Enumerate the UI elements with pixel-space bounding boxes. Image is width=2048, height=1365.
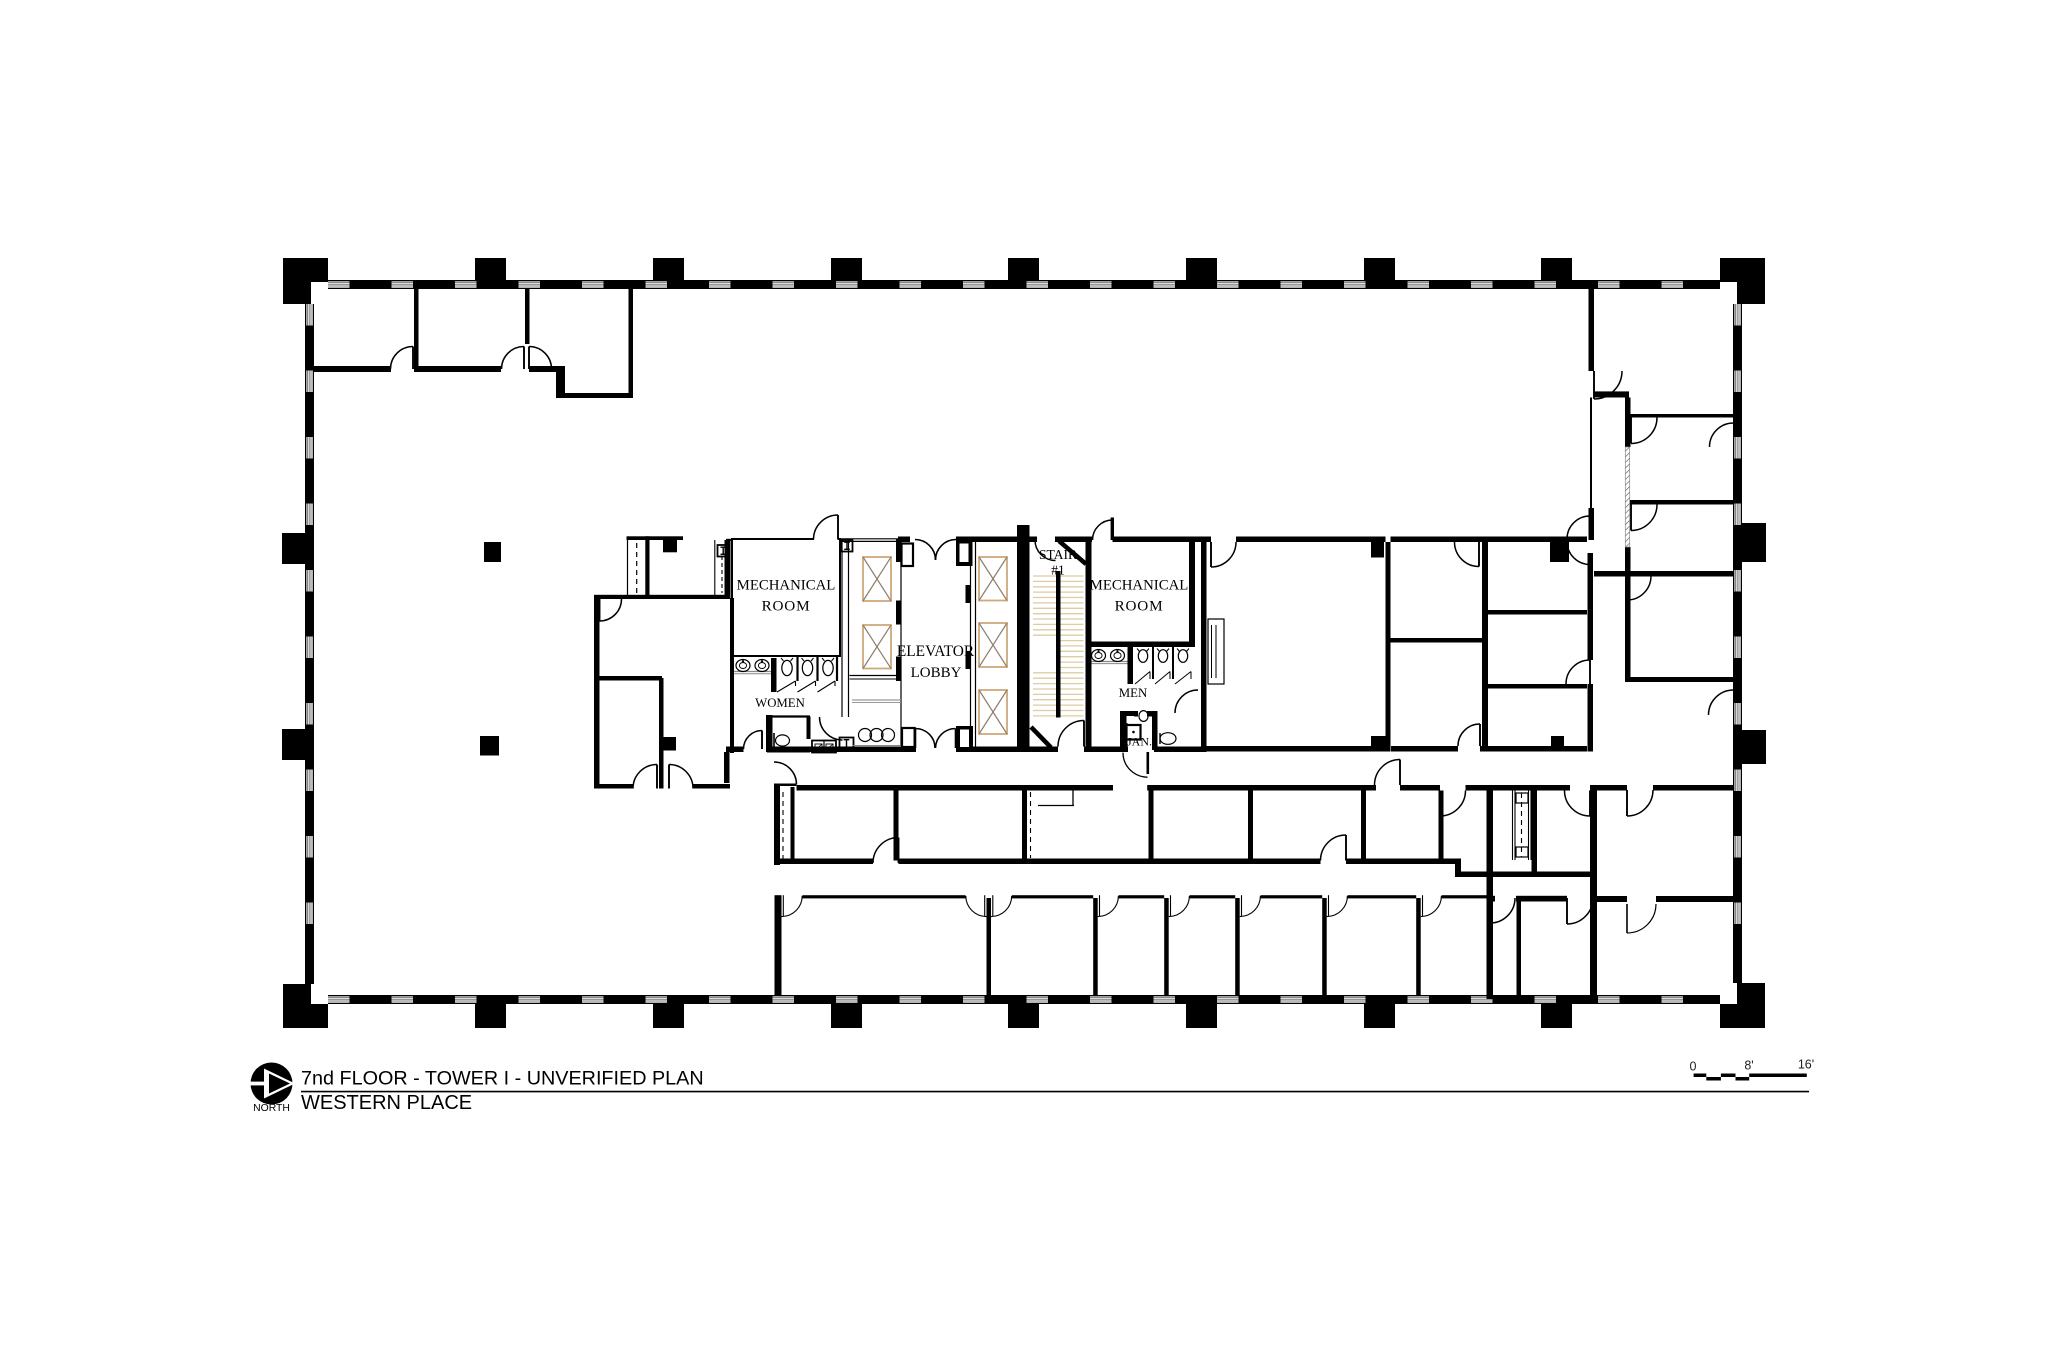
svg-text:MECHANICAL: MECHANICAL xyxy=(1090,578,1189,594)
svg-text:STAIR: STAIR xyxy=(1039,547,1077,562)
svg-text:MECHANICAL: MECHANICAL xyxy=(737,578,836,594)
svg-text:WESTERN PLACE: WESTERN PLACE xyxy=(301,1092,472,1114)
svg-text:0: 0 xyxy=(1690,1060,1697,1074)
svg-text:LOBBY: LOBBY xyxy=(911,665,962,681)
svg-text:WOMEN: WOMEN xyxy=(755,696,805,710)
svg-text:16': 16' xyxy=(1798,1058,1814,1072)
svg-text:MEN: MEN xyxy=(1119,686,1147,700)
svg-text:8': 8' xyxy=(1744,1059,1753,1073)
svg-text:NORTH: NORTH xyxy=(253,1103,290,1114)
svg-text:ROOM: ROOM xyxy=(1115,598,1164,615)
svg-text:ROOM: ROOM xyxy=(762,598,811,615)
svg-text:ELEVATOR: ELEVATOR xyxy=(897,643,975,660)
svg-text:7nd FLOOR - TOWER I - UNVERIFI: 7nd FLOOR - TOWER I - UNVERIFIED PLAN xyxy=(301,1068,704,1090)
svg-text:#1: #1 xyxy=(1051,563,1065,578)
svg-text:JAN.: JAN. xyxy=(1127,735,1152,749)
